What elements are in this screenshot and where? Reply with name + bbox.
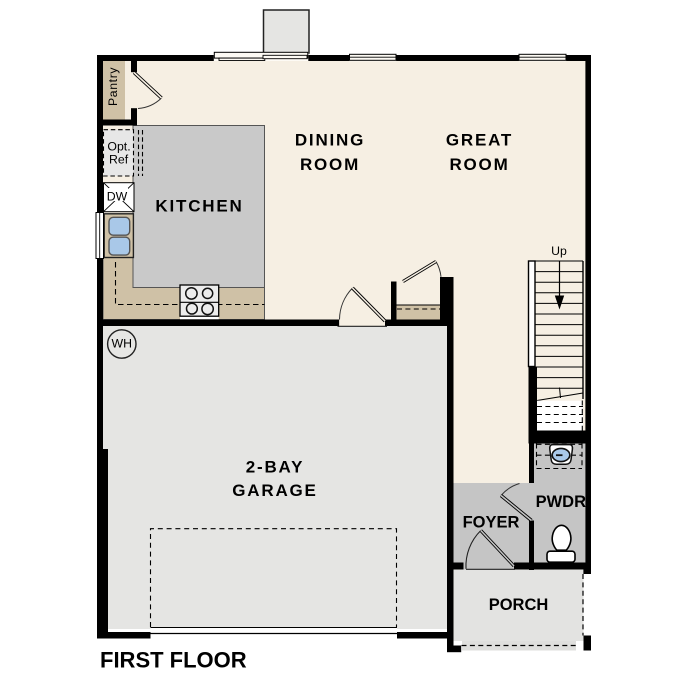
svg-text:PORCH: PORCH — [489, 596, 549, 614]
svg-text:DINING: DINING — [295, 131, 365, 150]
svg-text:2-BAY: 2-BAY — [246, 458, 304, 477]
svg-text:Ref: Ref — [109, 153, 129, 167]
svg-text:FOYER: FOYER — [463, 514, 520, 532]
svg-text:FIRST FLOOR: FIRST FLOOR — [100, 648, 247, 673]
svg-text:Up: Up — [551, 244, 567, 258]
svg-text:KITCHEN: KITCHEN — [155, 197, 243, 216]
svg-text:GARAGE: GARAGE — [232, 481, 317, 500]
svg-text:Opt.: Opt. — [107, 140, 130, 154]
svg-text:ROOM: ROOM — [449, 155, 509, 174]
svg-text:ROOM: ROOM — [300, 155, 360, 174]
svg-text:GREAT: GREAT — [446, 131, 513, 150]
svg-text:PWDR: PWDR — [536, 493, 586, 511]
svg-text:Pantry: Pantry — [106, 67, 120, 106]
svg-text:WH: WH — [112, 337, 133, 351]
svg-text:DW: DW — [107, 190, 128, 204]
